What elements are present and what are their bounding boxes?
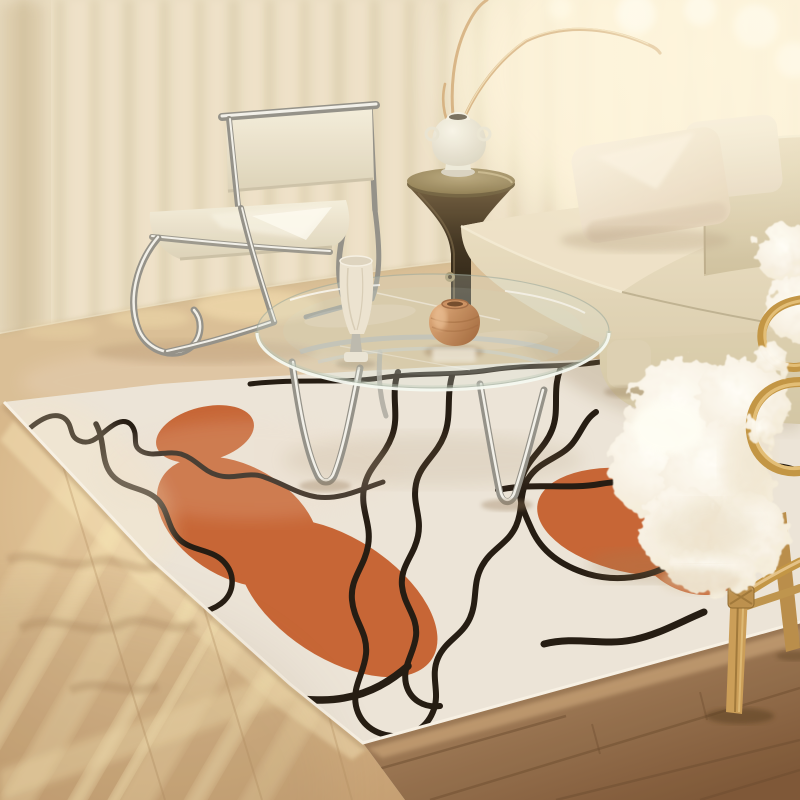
scene-image (0, 0, 800, 800)
living-room-photo (0, 0, 800, 800)
light-overlays (0, 0, 800, 800)
